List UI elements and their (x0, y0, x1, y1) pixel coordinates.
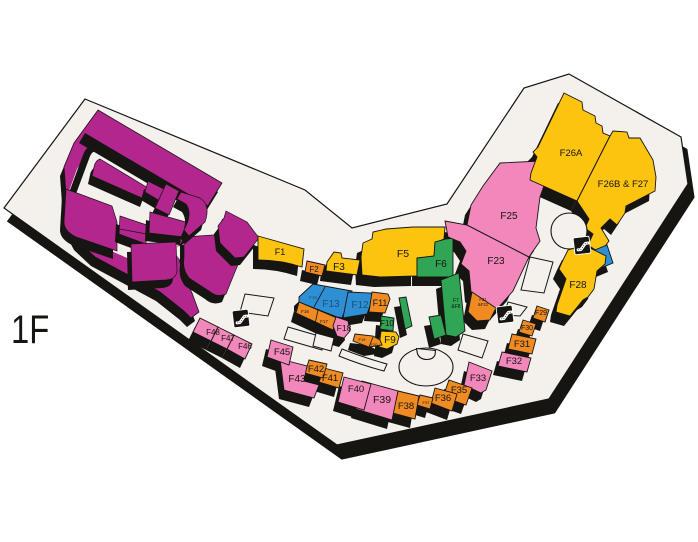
svg-text:F16: F16 (301, 309, 309, 314)
svg-text:F40: F40 (348, 384, 364, 395)
svg-text:F33: F33 (470, 373, 486, 384)
svg-text:F32: F32 (506, 356, 522, 367)
svg-text:F20: F20 (371, 342, 379, 347)
svg-text:F36: F36 (435, 393, 451, 404)
svg-text:F46: F46 (238, 342, 252, 351)
svg-text:F28: F28 (569, 280, 587, 291)
svg-text:F48: F48 (206, 328, 220, 337)
svg-text:F26A: F26A (560, 148, 583, 159)
svg-text:F10: F10 (380, 319, 394, 328)
svg-text:F47: F47 (221, 334, 235, 343)
svg-text:F12: F12 (351, 300, 369, 311)
svg-text:F3: F3 (333, 262, 345, 273)
svg-text:F19: F19 (359, 337, 367, 342)
svg-text:F45: F45 (274, 347, 290, 358)
svg-text:1F: 1F (11, 307, 49, 352)
svg-text:F5: F5 (397, 248, 409, 260)
svg-text:F26B & F27: F26B & F27 (598, 179, 649, 190)
svg-text:F15: F15 (309, 295, 317, 300)
svg-text:F18: F18 (337, 323, 352, 333)
svg-text:&F22: &F22 (478, 302, 489, 307)
svg-text:F25: F25 (500, 211, 518, 222)
svg-text:F41: F41 (322, 373, 338, 384)
svg-text:F9: F9 (384, 335, 396, 346)
svg-text:F2: F2 (309, 265, 319, 274)
svg-text:F30: F30 (521, 325, 533, 332)
svg-text:F23: F23 (487, 256, 505, 267)
svg-text:F17: F17 (320, 319, 328, 324)
svg-text:F42: F42 (308, 364, 324, 375)
svg-text:F39: F39 (373, 394, 391, 406)
svg-text:F31: F31 (514, 339, 530, 350)
svg-text:F11: F11 (373, 298, 388, 308)
svg-text:F35: F35 (451, 385, 467, 396)
svg-text:F37: F37 (423, 400, 431, 405)
svg-text:F13: F13 (322, 299, 340, 310)
svg-text:F38: F38 (398, 401, 414, 412)
svg-text:&F8: &F8 (451, 304, 460, 310)
svg-text:F6: F6 (435, 259, 447, 270)
svg-text:F1: F1 (275, 247, 286, 257)
svg-text:F29: F29 (535, 310, 547, 317)
svg-text:F43: F43 (288, 374, 306, 385)
